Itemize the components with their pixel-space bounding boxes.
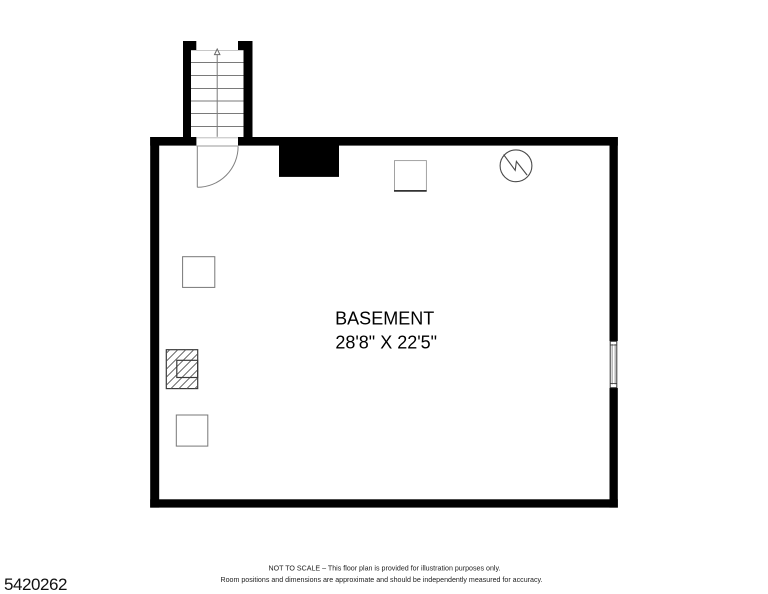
- svg-text:28'8" X 22'5": 28'8" X 22'5": [335, 332, 437, 352]
- svg-text:BASEMENT: BASEMENT: [335, 309, 434, 329]
- svg-text:Room positions and dimensions: Room positions and dimensions are approx…: [220, 576, 542, 584]
- svg-text:NOT TO SCALE – This floor plan: NOT TO SCALE – This floor plan is provid…: [269, 564, 501, 572]
- svg-text:5420262: 5420262: [4, 575, 67, 594]
